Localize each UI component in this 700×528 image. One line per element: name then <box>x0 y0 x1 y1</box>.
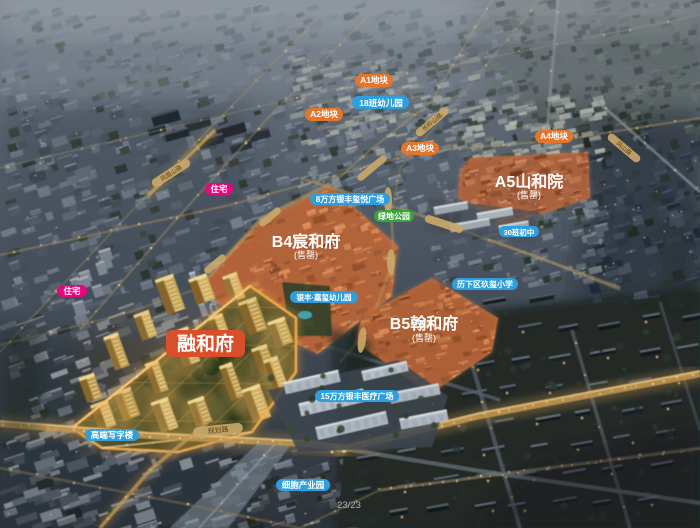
svg-text:高端写字楼: 高端写字楼 <box>91 430 134 440</box>
svg-text:8万方银丰玺悦广场: 8万方银丰玺悦广场 <box>316 194 384 204</box>
svg-text:30班初中: 30班初中 <box>504 227 535 237</box>
svg-text:银丰·嘉玺幼儿园: 银丰·嘉玺幼儿园 <box>297 292 352 302</box>
svg-text:23/23: 23/23 <box>337 500 361 511</box>
svg-text:18班幼儿园: 18班幼儿园 <box>359 98 402 108</box>
svg-text:A5山和院: A5山和院 <box>495 172 563 191</box>
svg-text:A2地块: A2地块 <box>310 109 338 119</box>
svg-text:住宅: 住宅 <box>63 286 81 296</box>
svg-text:绿地公园: 绿地公园 <box>378 211 410 221</box>
svg-text:B5翰和府: B5翰和府 <box>390 314 458 333</box>
svg-text:(售罄): (售罄) <box>294 249 318 260</box>
svg-text:(售罄): (售罄) <box>517 189 541 200</box>
svg-text:15万方银丰医疗广场: 15万方银丰医疗广场 <box>321 391 394 401</box>
svg-text:A3地块: A3地块 <box>406 143 434 153</box>
svg-text:住宅: 住宅 <box>210 184 228 194</box>
svg-text:(售罄): (售罄) <box>412 332 436 343</box>
svg-text:历下区玖玺小学: 历下区玖玺小学 <box>457 279 513 289</box>
svg-text:融和府: 融和府 <box>177 332 234 355</box>
svg-text:A4地块: A4地块 <box>540 131 568 141</box>
svg-text:B4宸和府: B4宸和府 <box>272 232 340 251</box>
svg-text:A1地块: A1地块 <box>360 75 388 85</box>
svg-text:细胞产业园: 细胞产业园 <box>282 480 325 490</box>
